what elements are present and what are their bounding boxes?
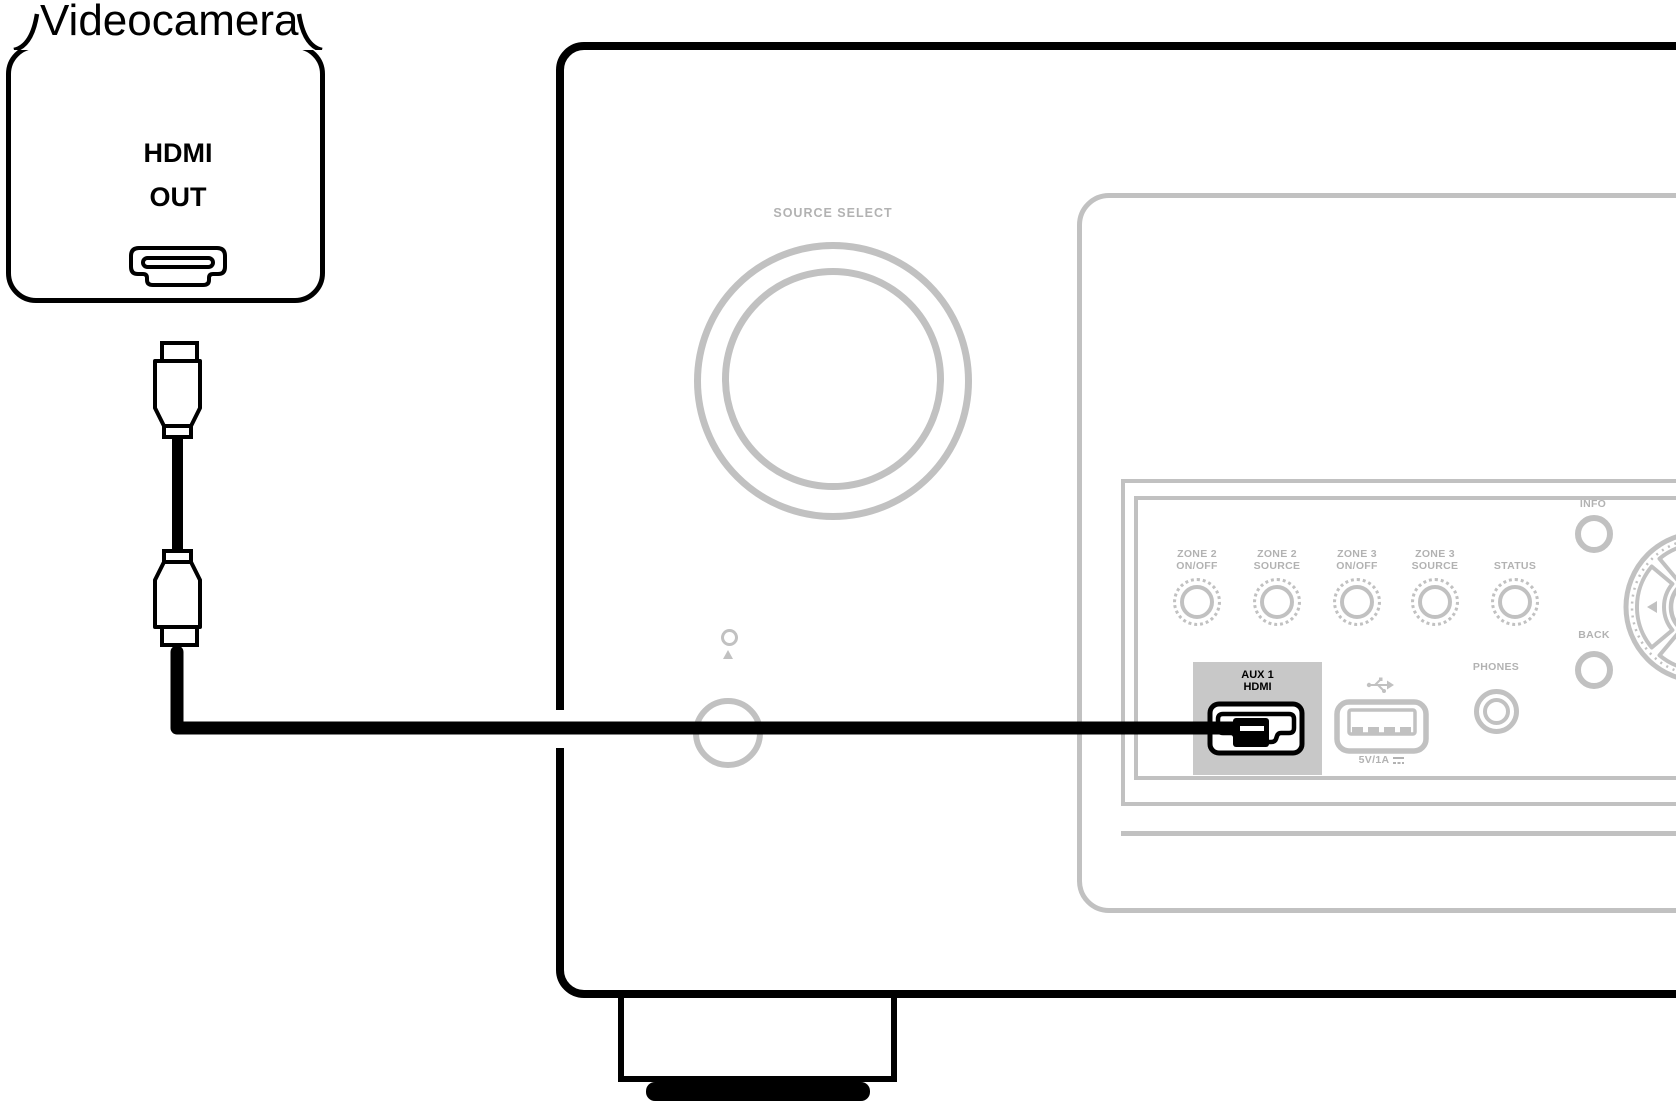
label-hook-right-icon: [296, 12, 324, 50]
status-label: STATUS: [1475, 544, 1555, 572]
headphone-jack-inner: [1483, 698, 1510, 725]
label-hook-left-icon: [12, 12, 40, 50]
zone3-onoff-button-cap[interactable]: [1340, 585, 1374, 619]
usb-trident-icon: [1366, 676, 1396, 694]
source-select-label: SOURCE SELECT: [733, 206, 933, 220]
zone3-source-button-cap[interactable]: [1418, 585, 1452, 619]
zone2-onoff-button-cap[interactable]: [1180, 585, 1214, 619]
zone2-source-button-cap[interactable]: [1260, 585, 1294, 619]
camera-port-label-line2: OUT: [70, 182, 286, 213]
panel-seam-line: [1121, 831, 1676, 836]
source-select-knob-cap[interactable]: [722, 268, 944, 490]
usb-a-port-icon: [1334, 699, 1429, 754]
status-button-cap[interactable]: [1498, 585, 1532, 619]
hdmi-out-port-icon: [128, 246, 228, 288]
videocamera-title: Videocamera: [40, 0, 296, 52]
receiver-foot: [618, 998, 897, 1082]
zone3-source-label: ZONE 3 SOURCE: [1395, 544, 1475, 572]
hdmi-cable: [140, 640, 1280, 760]
camera-port-label-line1: HDMI: [70, 138, 286, 169]
zone3-onoff-label: ZONE 3 ON/OFF: [1317, 544, 1397, 572]
connection-diagram: Videocamera HDMI OUT SOURCE SELECT ZONE …: [0, 0, 1676, 1115]
receiver-foot-base: [646, 1082, 870, 1101]
usb-power-label: 5V/1A: [1332, 754, 1432, 766]
phones-label: PHONES: [1456, 661, 1536, 673]
cursor-pad[interactable]: [1600, 507, 1676, 707]
zone2-source-label: ZONE 2 SOURCE: [1237, 544, 1317, 572]
hdmi-cable-connectors: [145, 336, 211, 656]
zone2-onoff-label: ZONE 2 ON/OFF: [1157, 544, 1237, 572]
dc-power-icon: [1392, 756, 1405, 765]
